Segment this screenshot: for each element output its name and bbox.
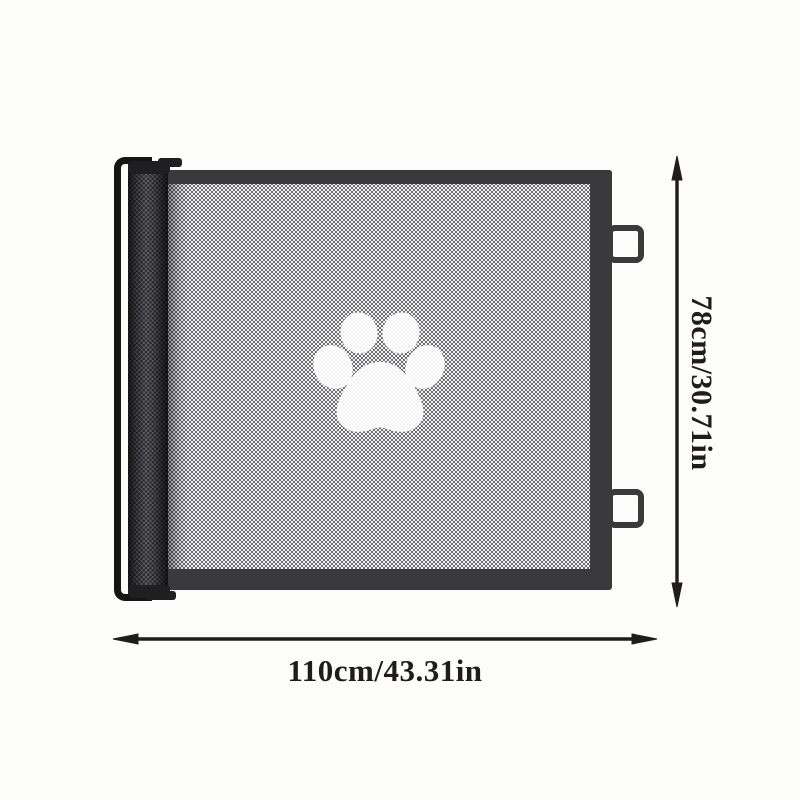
height-dimension-label: 78cm/30.71in (684, 295, 718, 470)
frame-bottom-bar (166, 569, 612, 590)
roller-top-tab (158, 158, 182, 167)
paw-print-icon (310, 308, 450, 443)
hook-bracket-top (607, 225, 644, 263)
height-dimension-arrow (672, 156, 682, 607)
width-dimension-arrow (113, 634, 657, 644)
frame-top-bar (166, 170, 612, 184)
product-dimension-diagram: 78cm/30.71in 110cm/43.31in (0, 0, 800, 800)
hook-bracket-bottom (607, 489, 644, 528)
mesh-roller (128, 163, 168, 597)
frame-right-bar (590, 170, 612, 590)
width-dimension-label: 110cm/43.31in (115, 653, 655, 689)
roller-bottom-tab (146, 591, 176, 600)
